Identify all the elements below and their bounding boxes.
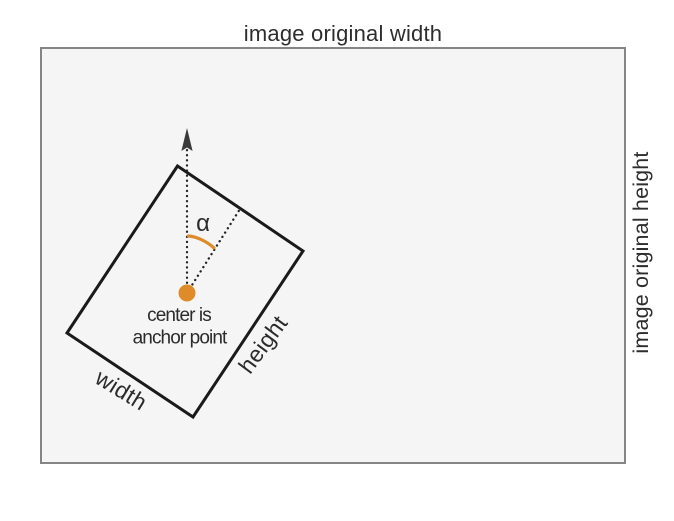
svg-text:center is: center is (147, 305, 211, 326)
svg-text:image original width: image original width (244, 21, 442, 46)
svg-text:α: α (196, 210, 210, 237)
svg-text:anchor point: anchor point (133, 328, 228, 349)
svg-text:image original height: image original height (629, 151, 653, 353)
